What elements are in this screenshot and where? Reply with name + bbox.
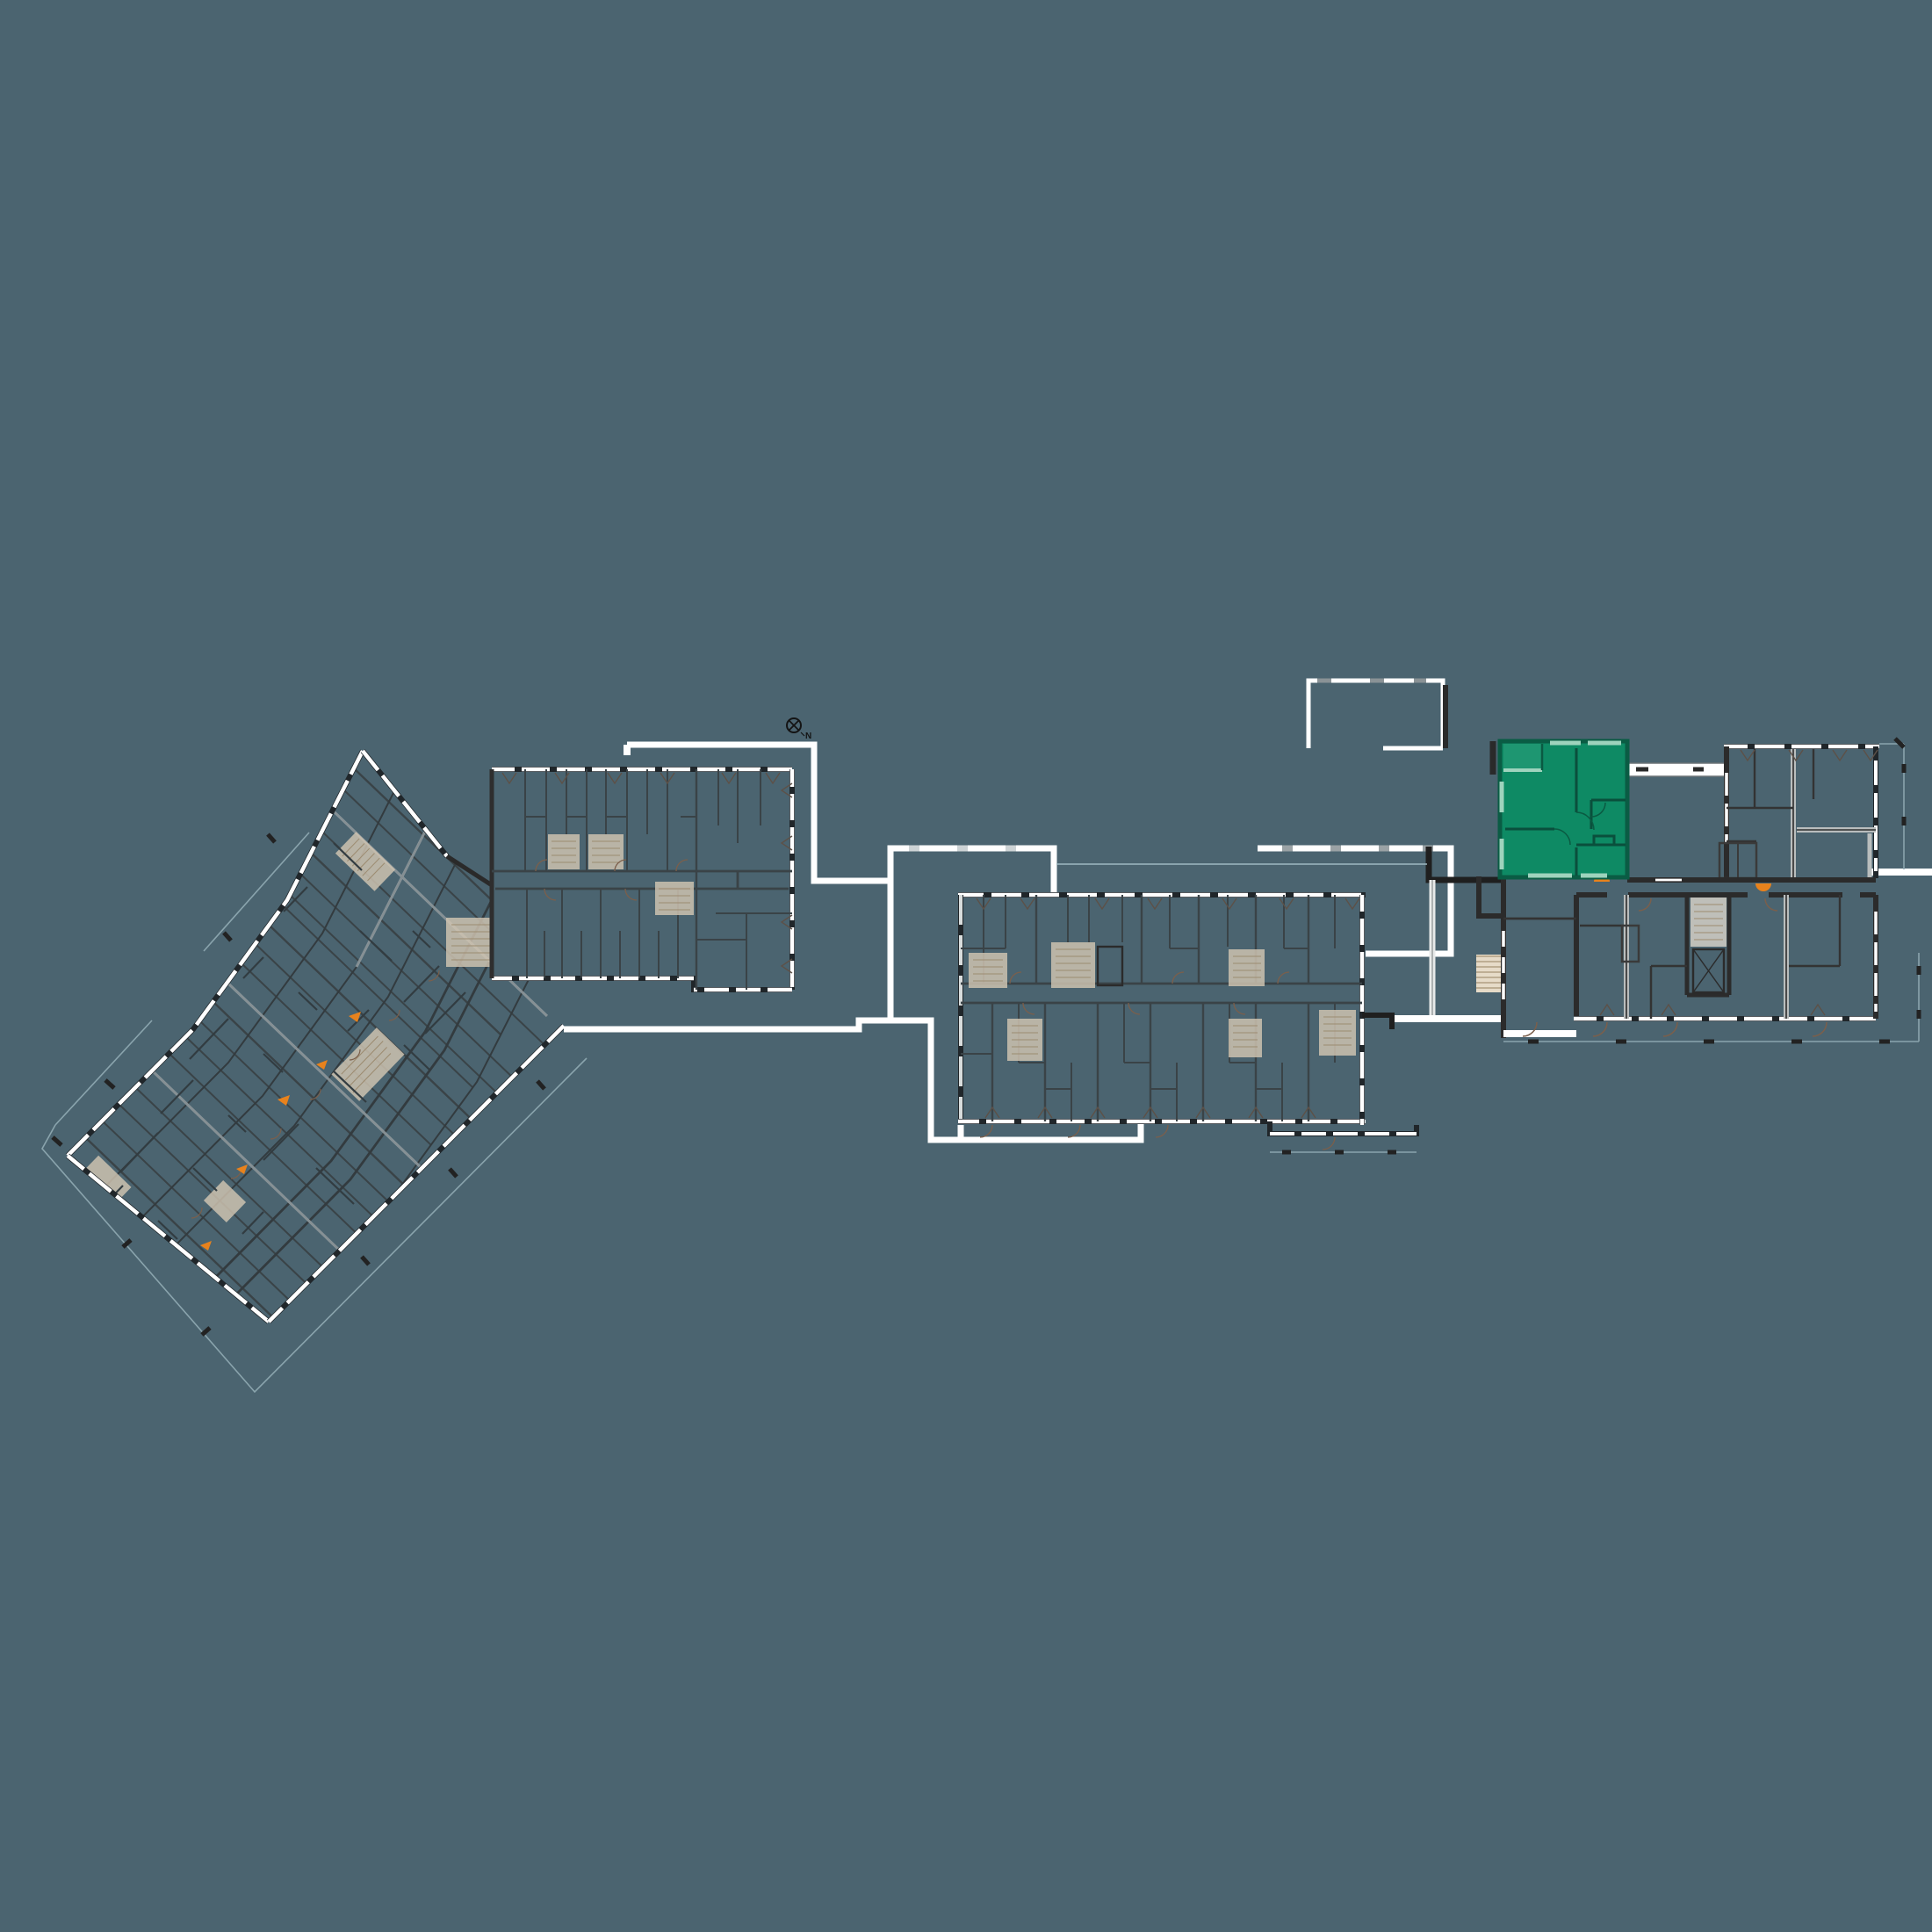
svg-text:N: N (805, 732, 811, 741)
